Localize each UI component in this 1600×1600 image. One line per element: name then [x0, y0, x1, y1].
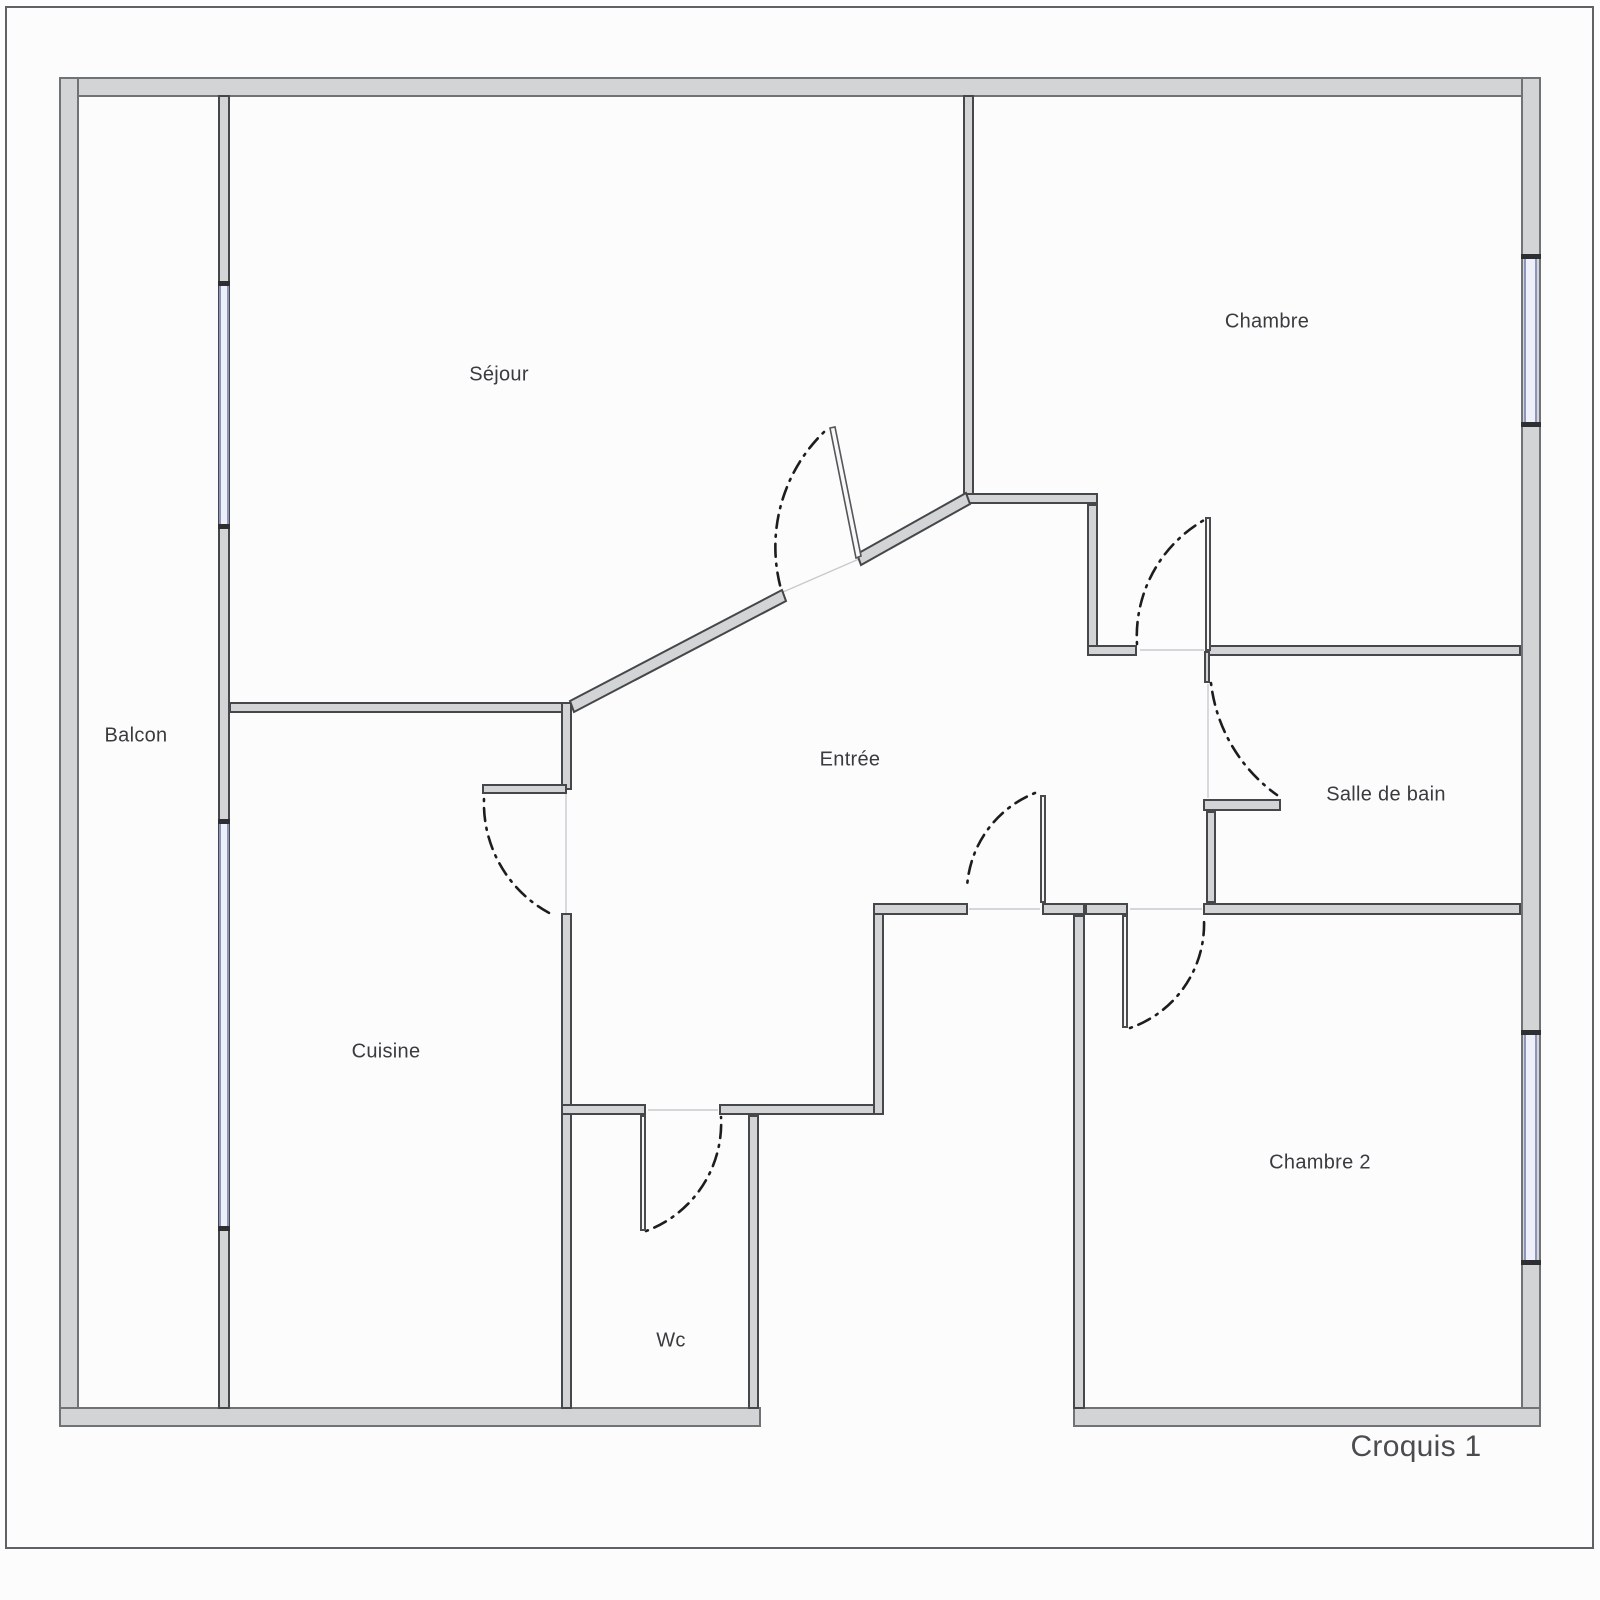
door-leaf — [1122, 915, 1128, 1028]
room-label-balcon: Balcon — [105, 725, 168, 748]
window-segment — [1524, 258, 1537, 424]
plan-caption: Croquis 1 — [1350, 1430, 1481, 1464]
door-leaf — [1205, 517, 1211, 651]
interior-wall — [873, 903, 968, 915]
room-label-cuisine: Cuisine — [352, 1041, 421, 1064]
interior-wall — [1203, 903, 1521, 915]
interior-wall — [1203, 799, 1281, 811]
interior-wall — [719, 1104, 884, 1115]
door-swing-arc — [1137, 519, 1206, 644]
room-label-chambre: Chambre — [1225, 311, 1309, 334]
exterior-wall — [1073, 1407, 1541, 1427]
door-swing-arc — [484, 799, 551, 914]
room-label-chambre-2: Chambre 2 — [1269, 1152, 1371, 1175]
door-swing-arc — [1211, 683, 1277, 795]
wall-diagonal — [857, 493, 970, 565]
door-swing-arc — [1130, 920, 1204, 1028]
door-swing-arc — [775, 432, 824, 589]
exterior-wall — [59, 77, 79, 1427]
interior-wall — [482, 784, 567, 794]
window-end-tick — [218, 281, 230, 286]
interior-wall — [873, 903, 884, 1115]
door-leaf — [640, 1115, 646, 1231]
interior-wall — [229, 702, 572, 713]
floorplan-page: SéjourChambreBalconEntréeSalle de bainCu… — [0, 0, 1600, 1600]
window-end-tick — [1521, 422, 1541, 427]
window-segment — [219, 285, 229, 527]
room-label-sejour: Séjour — [469, 364, 529, 387]
interior-wall — [561, 913, 572, 1409]
window-end-tick — [1521, 254, 1541, 259]
window-segment — [219, 823, 229, 1228]
room-label-salle-de-bain: Salle de bain — [1326, 784, 1446, 807]
window-end-tick — [218, 524, 230, 529]
door-swing-arc — [967, 793, 1035, 888]
room-label-entree: Entrée — [820, 749, 881, 772]
exterior-wall — [59, 77, 1541, 97]
interior-wall — [561, 702, 572, 790]
wall-diagonal — [570, 590, 786, 712]
interior-wall — [1042, 903, 1085, 915]
window-end-tick — [1521, 1030, 1541, 1035]
interior-wall — [1206, 811, 1216, 903]
interior-wall — [963, 95, 974, 495]
interior-wall — [748, 1115, 759, 1409]
door-leaf — [1040, 795, 1046, 903]
floorplan: SéjourChambreBalconEntréeSalle de bainCu… — [0, 0, 1600, 1600]
room-label-wc: Wc — [656, 1330, 685, 1353]
window-end-tick — [218, 1226, 230, 1231]
interior-wall — [1206, 645, 1521, 656]
window-segment — [1524, 1034, 1537, 1262]
door-closed-line — [783, 559, 859, 592]
door-swing-arc — [646, 1117, 721, 1231]
interior-wall — [963, 493, 1098, 504]
interior-wall — [1204, 651, 1210, 683]
interior-wall — [1087, 504, 1098, 651]
window-end-tick — [1521, 1260, 1541, 1265]
interior-wall — [561, 1104, 646, 1115]
window-end-tick — [218, 819, 230, 824]
interior-wall — [1085, 903, 1128, 915]
interior-wall — [1073, 915, 1085, 1409]
exterior-wall — [59, 1407, 761, 1427]
interior-wall — [1087, 645, 1137, 656]
door-leaf — [830, 427, 861, 558]
